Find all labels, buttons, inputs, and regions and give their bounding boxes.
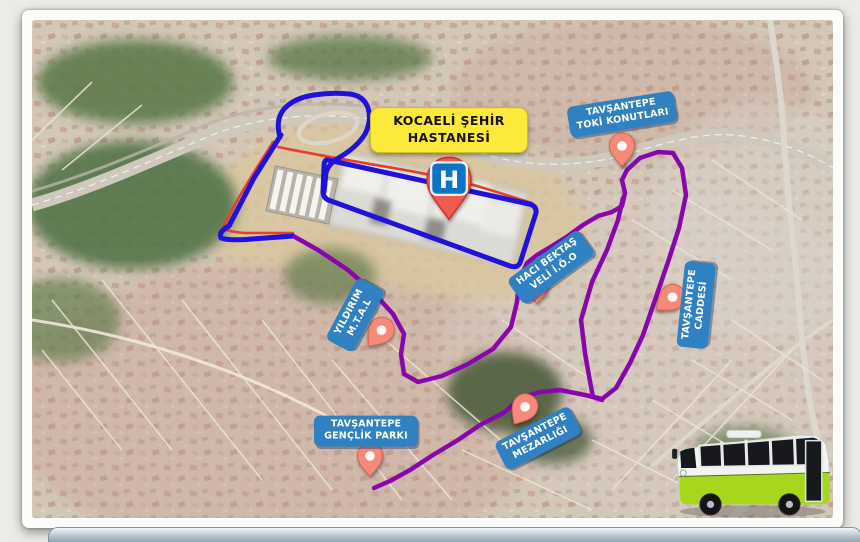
bus-windshield [680,448,696,468]
bus-roof-ac [727,431,761,438]
hospital-pin: H [423,152,475,228]
location-pin-genclik [357,441,383,483]
hospital-title-label: KOCAELİ ŞEHİR HASTANESİ [370,107,528,153]
bus-rear-hub [786,501,793,508]
bus-door [806,441,822,502]
bus-front-hub [707,501,714,508]
bus-mirror [672,449,677,459]
location-pin-toki [609,131,635,173]
location-label-genclik: TAVŞANTEPE GENÇLİK PARKI [314,416,418,447]
bus-headlight [680,470,686,476]
hospital-pin-icon: H [423,152,475,224]
location-pin-icon [609,131,635,169]
hospital-marker-letter: H [439,165,459,194]
bus-image [666,420,838,522]
bus-window-band [699,437,822,467]
next-card-edge [48,527,860,542]
